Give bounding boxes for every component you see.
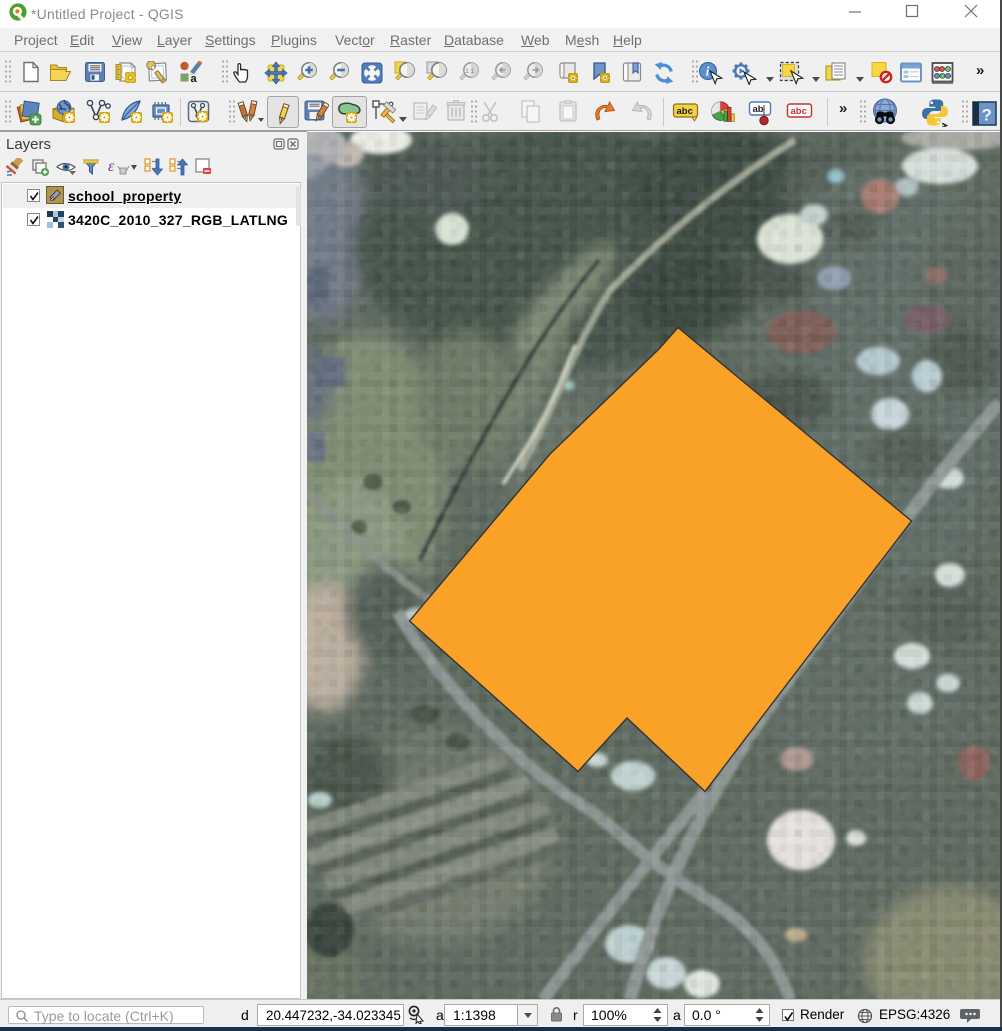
svg-text:ε: ε [108, 158, 115, 175]
svg-text:abc: abc [791, 106, 807, 117]
svg-text:abc: abc [677, 106, 693, 117]
svg-text:?: ? [982, 106, 992, 125]
svg-text:1:1: 1:1 [465, 68, 474, 75]
svg-text:a: a [191, 73, 198, 83]
svg-text:ab: ab [753, 104, 764, 115]
svg-text:i: i [706, 64, 710, 79]
